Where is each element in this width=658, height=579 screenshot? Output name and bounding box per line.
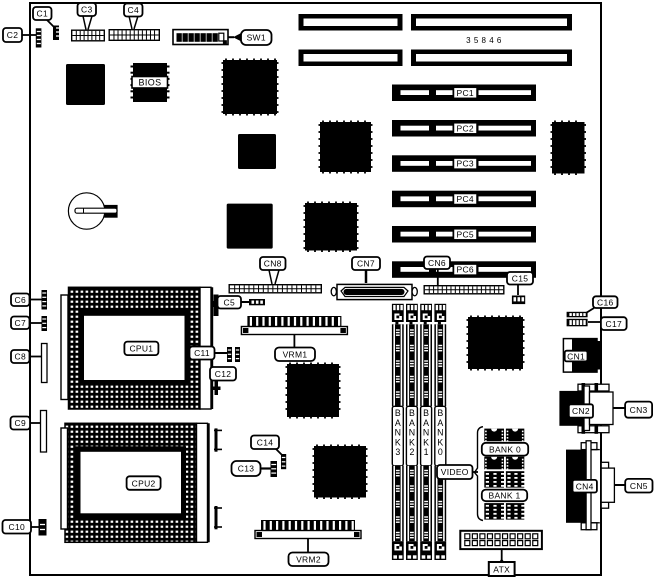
svg-text:C17: C17 — [606, 319, 623, 329]
svg-text:SW1: SW1 — [247, 33, 266, 43]
svg-text:C2: C2 — [7, 30, 18, 40]
svg-text:BIOS: BIOS — [138, 78, 161, 88]
svg-text:N: N — [423, 428, 429, 438]
svg-text:PC1: PC1 — [456, 88, 473, 98]
svg-text:K: K — [437, 437, 443, 447]
svg-text:1: 1 — [424, 447, 429, 457]
svg-text:K: K — [409, 437, 415, 447]
svg-text:N: N — [437, 428, 443, 438]
svg-text:CN3: CN3 — [630, 405, 648, 415]
svg-text:PC4: PC4 — [456, 194, 473, 204]
svg-text:C16: C16 — [597, 297, 614, 307]
svg-text:CN5: CN5 — [630, 481, 648, 491]
svg-text:C15: C15 — [512, 273, 529, 283]
svg-text:C4: C4 — [128, 5, 139, 15]
svg-text:VIDEO: VIDEO — [441, 467, 469, 477]
svg-text:C5: C5 — [224, 297, 235, 307]
svg-text:2: 2 — [409, 447, 414, 457]
svg-text:C7: C7 — [15, 318, 26, 328]
svg-text:PC5: PC5 — [456, 229, 473, 239]
svg-text:B: B — [409, 408, 415, 418]
svg-text:C1: C1 — [37, 9, 48, 19]
svg-text:CPU2: CPU2 — [132, 478, 156, 488]
svg-text:K: K — [423, 437, 429, 447]
svg-text:CN4: CN4 — [576, 481, 594, 491]
svg-text:CN6: CN6 — [428, 258, 446, 268]
svg-text:N: N — [395, 428, 401, 438]
svg-text:BANK 1: BANK 1 — [488, 491, 520, 501]
svg-text:C14: C14 — [257, 437, 274, 447]
svg-text:A: A — [423, 418, 429, 428]
svg-text:B: B — [437, 408, 443, 418]
svg-text:ATX: ATX — [493, 565, 510, 575]
svg-text:CN2: CN2 — [572, 406, 590, 416]
svg-text:A: A — [395, 418, 401, 428]
svg-text:PC3: PC3 — [456, 159, 473, 169]
svg-text:N: N — [409, 428, 415, 438]
svg-text:A: A — [409, 418, 415, 428]
svg-text:B: B — [395, 408, 401, 418]
svg-text:3: 3 — [395, 447, 400, 457]
svg-text:A: A — [437, 418, 443, 428]
svg-text:C8: C8 — [15, 352, 26, 362]
svg-text:3 5 8 4 6: 3 5 8 4 6 — [466, 36, 502, 45]
svg-text:0: 0 — [438, 447, 443, 457]
svg-text:PC6: PC6 — [456, 265, 473, 275]
svg-text:BANK 0: BANK 0 — [489, 444, 521, 454]
svg-text:C6: C6 — [15, 295, 26, 305]
svg-text:C10: C10 — [9, 522, 26, 532]
svg-text:VRM1: VRM1 — [283, 349, 308, 359]
svg-text:CN8: CN8 — [264, 259, 282, 269]
svg-text:CN1: CN1 — [567, 351, 585, 361]
svg-text:B: B — [423, 408, 429, 418]
svg-text:CN7: CN7 — [357, 259, 375, 269]
svg-text:C9: C9 — [15, 418, 26, 428]
svg-text:C11: C11 — [194, 348, 210, 358]
svg-text:K: K — [395, 437, 401, 447]
svg-text:C3: C3 — [81, 5, 92, 15]
svg-text:CPU1: CPU1 — [129, 344, 153, 354]
svg-text:VRM2: VRM2 — [296, 554, 321, 564]
svg-text:C12: C12 — [215, 369, 232, 379]
svg-text:PC2: PC2 — [456, 123, 473, 133]
svg-text:C13: C13 — [238, 464, 255, 474]
